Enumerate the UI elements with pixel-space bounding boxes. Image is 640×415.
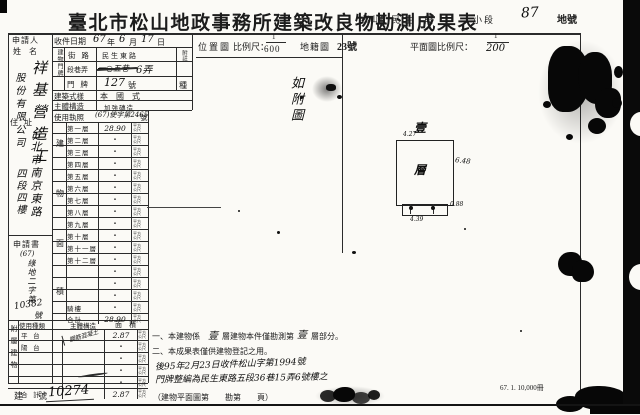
floor-row-value: ・ <box>98 158 132 169</box>
lot-label: 地號 <box>557 11 577 26</box>
receipt-month-unit: 月 <box>129 37 137 48</box>
annex-row: 陽 台・平方公尺 <box>8 340 148 352</box>
annex-row-unit: 平方公尺 <box>138 355 147 363</box>
receipt-year: 67 <box>93 34 106 45</box>
speck <box>520 330 522 332</box>
applicant-address-handwritten-col2: 四段四樓 <box>12 168 27 216</box>
floor-row-value: ・ <box>98 218 132 229</box>
floor-row-label: 第六層 <box>52 183 98 193</box>
note-1-handwritten-2: 壹 <box>297 326 307 341</box>
ink-blot <box>368 390 380 400</box>
floor-row-value: ・ <box>98 170 132 181</box>
receipt-day: 17 <box>141 34 154 45</box>
floor-area-row: 第五層・平方公尺 <box>52 169 148 181</box>
annex-row-value: ・ <box>104 341 138 352</box>
note-1-handwritten-1: 壹 <box>208 327 218 342</box>
floor-row-label: 第三層 <box>52 147 98 157</box>
plan-mark <box>409 206 413 210</box>
plan-mark <box>431 206 435 210</box>
lot-number-handwritten: 87 <box>521 5 540 22</box>
floor-area-row: 第二層・平方公尺 <box>52 133 148 145</box>
annex-row-label: 平 台 <box>8 330 62 340</box>
street-value: 民生東路 <box>102 51 138 61</box>
floor-row-unit: 平方公尺 <box>132 124 143 132</box>
grid-line <box>196 57 342 58</box>
annex-header-area: 面 積 <box>104 320 147 330</box>
plate-unit: 號 <box>128 80 136 91</box>
floor-area-row: 第一層28.90平方公尺 <box>52 122 148 133</box>
floor-row-unit: 平方公尺 <box>132 232 143 240</box>
floor-row-label: 第十層 <box>52 231 98 241</box>
floor-row-value: ・ <box>98 134 132 145</box>
floor-row-value: ・ <box>98 278 132 289</box>
receipt-year-unit: 年 <box>107 37 115 48</box>
floor-row-label: 第七層 <box>52 195 98 205</box>
note-1-a: 一、本建物係 <box>152 331 200 342</box>
floor-row-value: 28.90 <box>98 123 132 133</box>
section-name: 民生 <box>391 13 417 26</box>
location-scale-numerator: 1 <box>272 33 276 41</box>
handwritten-note-line-2: 門牌整編為民生東路五段36巷15弄6號樓之 <box>155 369 328 385</box>
floor-area-row: 第七層・平方公尺 <box>52 193 148 205</box>
floor-row-value: ・ <box>98 254 132 265</box>
annex-row-label: 陽 台 <box>8 342 62 352</box>
ink-blot <box>588 118 606 134</box>
application-no-prefix: (67) <box>20 250 34 258</box>
floor-row-value: ・ <box>98 182 132 193</box>
floor-row-value: ・ <box>98 206 132 217</box>
floor-area-row: 第十一層・平方公尺 <box>52 241 148 253</box>
applicant-address-label: 住 址 <box>10 117 34 128</box>
cadastral-map-label: 地籍圖 <box>300 40 330 53</box>
floor-row-value: ・ <box>98 302 132 313</box>
note-1-c: 層部分。 <box>311 331 343 342</box>
floorplan-scale-denominator: 200 <box>486 43 505 54</box>
floor-row-value: ・ <box>98 146 132 157</box>
plan-right-dimension: 6.48 <box>455 156 471 166</box>
applicant-name-handwritten-col2: 股份有限公司 <box>11 72 26 150</box>
fraction-bar <box>266 42 286 43</box>
door-note-label: 附註 <box>180 50 188 61</box>
applicant-address-handwritten-col1: 台北市南京東路 <box>27 128 43 219</box>
floor-area-row: ・平方公尺 <box>52 289 148 301</box>
annex-row-unit: 平方公尺 <box>138 367 147 375</box>
plate-number-handwriting: 127 <box>104 76 125 89</box>
plan-page-reference: （建物平面圖第 勘第 頁） <box>153 392 273 403</box>
location-map-annotation: 如附圖 <box>286 76 305 124</box>
speck <box>238 210 240 212</box>
scanned-survey-form-page: 臺北市松山地政事務所建築改良物勘測成果表 松山區 民生 段 小段 87 地號 申… <box>0 0 640 415</box>
annex-row-value: ・ <box>104 365 138 376</box>
grid-line <box>192 33 193 110</box>
applicant-name-label: 姓 名 <box>13 46 40 57</box>
floor-row-unit: 平方公尺 <box>132 196 143 204</box>
grid-line <box>52 61 192 62</box>
annex-row: ・平方公尺 <box>8 352 148 364</box>
floor-row-unit: 平方公尺 <box>132 280 143 288</box>
annex-header-row: 使用種類 主體構造 面 積 <box>8 320 148 329</box>
floor-area-row: 第十二層・平方公尺 <box>52 253 148 265</box>
speck <box>464 228 466 230</box>
grid-line <box>52 47 192 48</box>
lane-value-handwriting: 6弄 <box>136 61 152 76</box>
floor-area-row: ・平方公尺 <box>52 265 148 277</box>
note-1-b: 層建物本件僅勘測第 <box>222 331 294 342</box>
floor-row-label: 第一層 <box>52 123 98 133</box>
floor-row-label: 第十一層 <box>52 243 98 253</box>
floor-area-row: 第八層・平方公尺 <box>52 205 148 217</box>
plan-floor-char: 層 <box>414 161 426 178</box>
scan-corner-mark <box>0 0 7 13</box>
floor-row-unit: 平方公尺 <box>132 292 143 300</box>
grid-line <box>96 47 97 110</box>
speck <box>326 84 336 91</box>
floor-row-label: 第十二層 <box>52 255 98 265</box>
speck <box>352 251 356 254</box>
building-number-label: 建 號 <box>14 389 50 402</box>
floor-row-unit: 平方公尺 <box>132 256 143 264</box>
subsection-label: 小段 <box>473 13 495 26</box>
floorplan-scale-label: 平面圖比例尺： <box>410 40 473 53</box>
annex-row: ・平方公尺 <box>8 364 148 376</box>
grid-line <box>64 47 65 90</box>
floor-row-label: 第五層 <box>52 171 98 181</box>
annex-row-unit: 平方公尺 <box>138 343 147 351</box>
annex-row-value: ・ <box>104 353 138 364</box>
location-scale-denominator: 600 <box>264 44 281 54</box>
receipt-date-label: 收件日期 <box>54 36 86 47</box>
speck <box>337 95 342 99</box>
floor-area-table: 第一層28.90平方公尺第二層・平方公尺第三層・平方公尺第四層・平方公尺第五層・… <box>52 122 148 320</box>
floor-row-unit: 平方公尺 <box>132 160 143 168</box>
speck <box>300 96 303 99</box>
plate-label: 門 牌 <box>67 79 90 90</box>
floor-row-label: 第二層 <box>52 135 98 145</box>
plan-top-dimension: 4.27 <box>403 131 416 138</box>
cadastral-sheet-number: 23號 <box>337 38 357 53</box>
ink-blot <box>612 98 622 108</box>
floor-area-row: 第四層・平方公尺 <box>52 157 148 169</box>
floor-row-unit: 平方公尺 <box>132 220 143 228</box>
floor-row-label: 第八層 <box>52 207 98 217</box>
grid-line <box>8 235 52 236</box>
floor-row-unit: 平方公尺 <box>132 244 143 252</box>
annex-row-unit: 平方公尺 <box>138 379 147 387</box>
floor-area-row: 第九層・平方公尺 <box>52 217 148 229</box>
lane-label: 段巷弄 <box>67 65 88 75</box>
annex-row-structure <box>62 353 104 364</box>
floorplan-scale-numerator: 1 <box>494 32 498 40</box>
ink-blot <box>614 66 623 78</box>
section-label: 段 <box>424 13 433 26</box>
floor-row-unit: 平方公尺 <box>132 304 143 312</box>
floor-area-row: ・平方公尺 <box>52 277 148 289</box>
ink-blot <box>566 134 573 140</box>
floor-row-value: ・ <box>98 242 132 253</box>
building-number-handwriting: 10274 <box>48 383 90 401</box>
structure-label: 主體構造 <box>54 101 84 112</box>
annex-row-value: ・ <box>104 377 138 388</box>
annex-row-unit: 平方公尺 <box>138 331 147 339</box>
floor-row-value: ・ <box>98 290 132 301</box>
ink-blot <box>543 101 551 108</box>
floor-row-value: ・ <box>98 194 132 205</box>
floor-row-unit: 平方公尺 <box>132 148 143 156</box>
floor-row-label: 第九層 <box>52 219 98 229</box>
door-plate-side-label: 建物門牌 <box>55 49 64 77</box>
plate-extra: 種 <box>179 80 187 91</box>
annex-row-value: 2.87 <box>104 389 138 399</box>
annex-table: 平 台鋼筋混凝土2.87平方公尺陽 台・平方公尺・平方公尺・平方公尺・平方公尺合… <box>8 329 148 383</box>
plan-bottom-dimension: 4.39 <box>410 216 423 223</box>
grid-line <box>176 47 177 90</box>
applicant-label: 申請人 <box>12 35 39 46</box>
receipt-day-unit: 日 <box>157 37 165 48</box>
floor-row-label: 騎樓 <box>52 303 98 313</box>
stray-line <box>147 207 221 208</box>
floor-row-unit: 平方公尺 <box>132 172 143 180</box>
annex-row-unit: 平方公尺 <box>138 390 147 398</box>
floor-area-row: 第六層・平方公尺 <box>52 181 148 193</box>
building-style-value: 本 國 式 <box>100 91 140 102</box>
floor-row-label: 第四層 <box>52 159 98 169</box>
floor-row-value: ・ <box>98 230 132 241</box>
floor-row-unit: 平方公尺 <box>132 184 143 192</box>
grid-line <box>342 33 343 253</box>
floor-row-value: ・ <box>98 266 132 277</box>
plan-strip-dimension: 0.88 <box>450 201 463 208</box>
floor-area-row: 騎樓・平方公尺 <box>52 301 148 313</box>
street-label: 街 路 <box>68 50 91 61</box>
print-code: 67. 1. 10,000冊 <box>500 383 544 393</box>
application-no-mid: 綠地二字第 <box>26 259 37 304</box>
application-form-label: 申請書 <box>13 239 40 250</box>
floor-row-unit: 平方公尺 <box>132 136 143 144</box>
district-label: 松山區 <box>362 14 386 25</box>
speck <box>277 231 280 234</box>
grid-line <box>148 110 149 383</box>
floor-area-row: 第十層・平方公尺 <box>52 229 148 241</box>
annex-row-value: 2.87 <box>104 330 138 340</box>
floor-row-unit: 平方公尺 <box>132 208 143 216</box>
receipt-month: 6 <box>119 34 125 45</box>
scan-edge-band <box>623 0 640 406</box>
scan-bottom-line <box>0 404 640 406</box>
annex-row: 平 台鋼筋混凝土2.87平方公尺 <box>8 329 148 340</box>
location-map-label: 位置圖 <box>198 40 231 53</box>
floor-area-row: 第三層・平方公尺 <box>52 145 148 157</box>
ink-blot <box>572 260 594 282</box>
floor-row-unit: 平方公尺 <box>132 268 143 276</box>
